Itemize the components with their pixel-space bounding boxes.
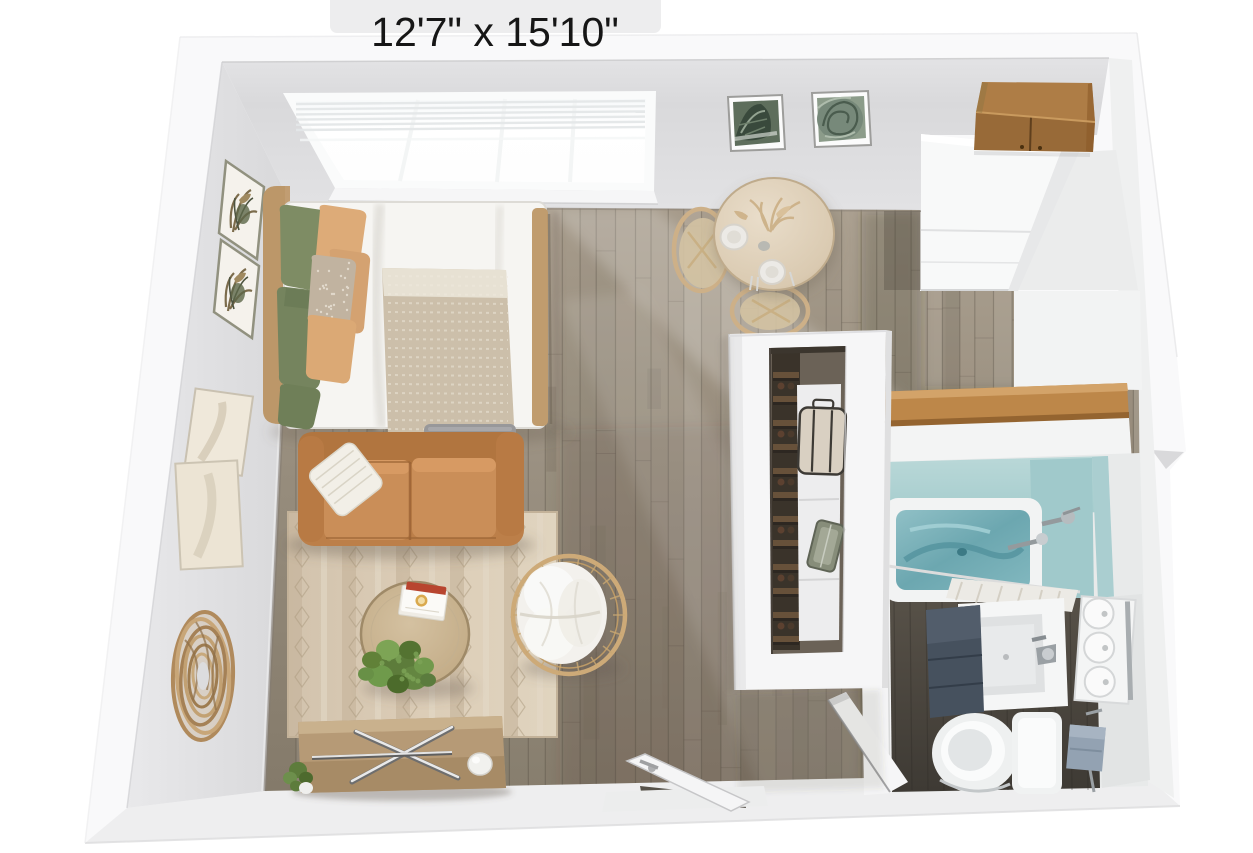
svg-text:12'7" x 15'10": 12'7" x 15'10" [371, 9, 619, 55]
